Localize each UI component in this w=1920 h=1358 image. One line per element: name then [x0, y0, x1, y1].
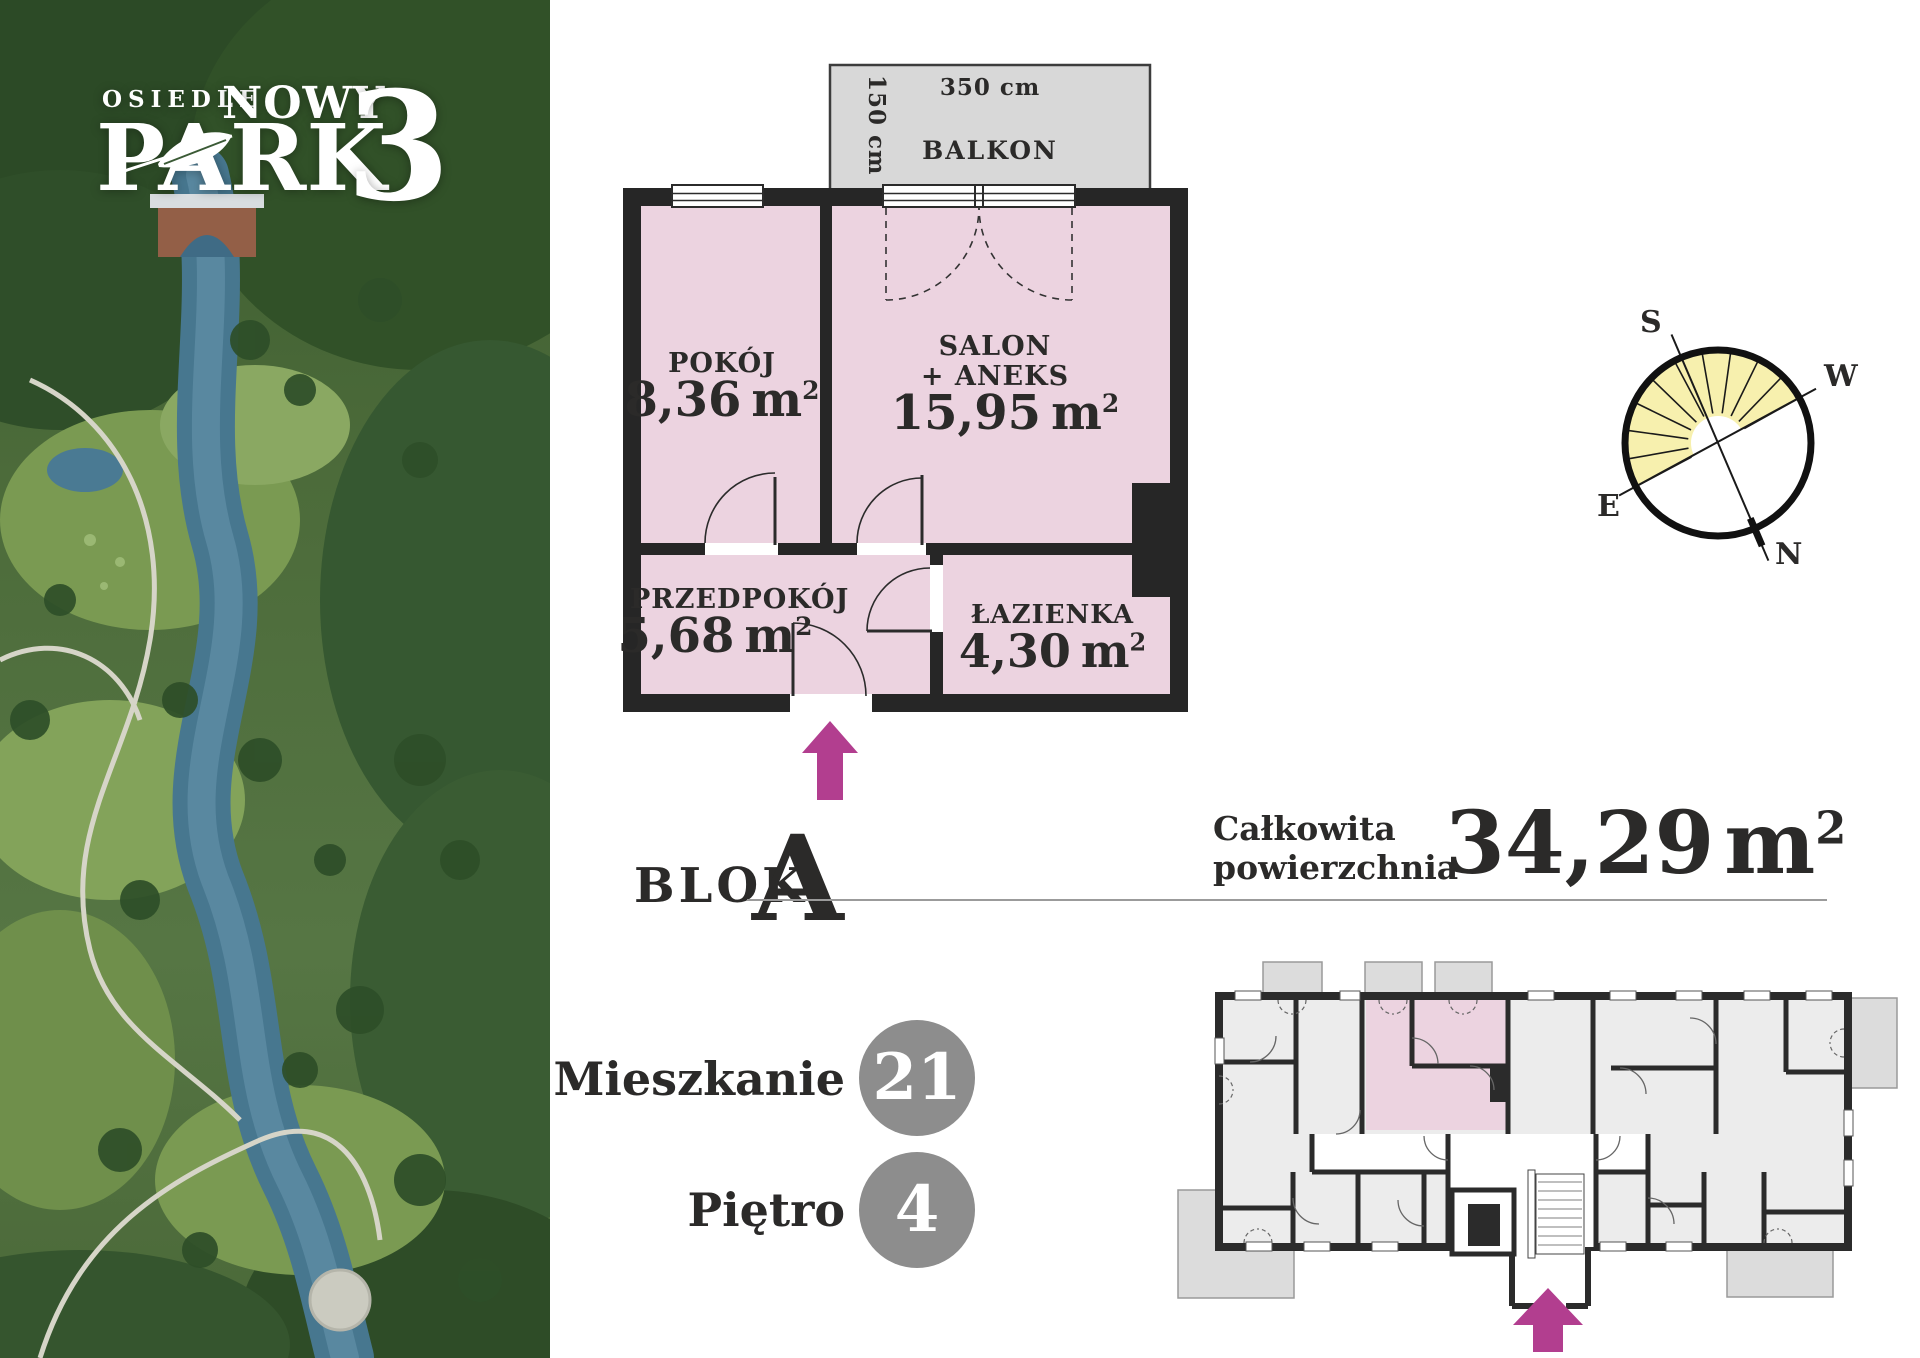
entrance-arrow-icon [802, 721, 858, 800]
apartment-number-badge: 21 [859, 1020, 975, 1136]
compass-east-label: E [1597, 492, 1620, 522]
room-area-przedpokoj: 5,68m2 [595, 612, 835, 660]
building-keyplan [1160, 950, 1920, 1358]
logo-leaf-icon [110, 122, 250, 182]
floor-label: Piętro [540, 1187, 845, 1233]
balcony-label: BALKON [905, 138, 1075, 163]
total-area-value: 34,29m2 [1445, 801, 1846, 887]
room-area-salon: 15,95m2 [880, 389, 1130, 437]
compass-north-label: N [1775, 540, 1802, 570]
window [672, 185, 763, 207]
compass-rose [1560, 290, 1880, 610]
logo-number-3: 3 [346, 72, 450, 222]
balcony-width-label: 350 cm [905, 76, 1075, 99]
balcony-depth-label: 150 cm [865, 75, 888, 175]
stairs-icon [1528, 1170, 1584, 1258]
floor-number-badge: 4 [859, 1152, 975, 1268]
room-area-pokoj: 8,36m2 [602, 376, 842, 424]
block-value: A [752, 820, 844, 938]
divider-rule [747, 899, 1827, 901]
room-name-salon: SALON [905, 333, 1085, 360]
brochure-page: OSIEDLE NOWY PARK 3 [0, 0, 1920, 1358]
compass-south-label: S [1640, 308, 1662, 338]
room-area-lazienka: 4,30m2 [935, 628, 1170, 674]
elevator-icon [1452, 1190, 1514, 1254]
shaft-block [1132, 483, 1188, 597]
compass-west-label: W [1824, 362, 1858, 392]
park-photo: OSIEDLE NOWY PARK 3 [0, 0, 550, 1358]
total-area-label: Całkowita powierzchnia [1213, 810, 1458, 888]
apartment-label: Mieszkanie [540, 1056, 845, 1102]
